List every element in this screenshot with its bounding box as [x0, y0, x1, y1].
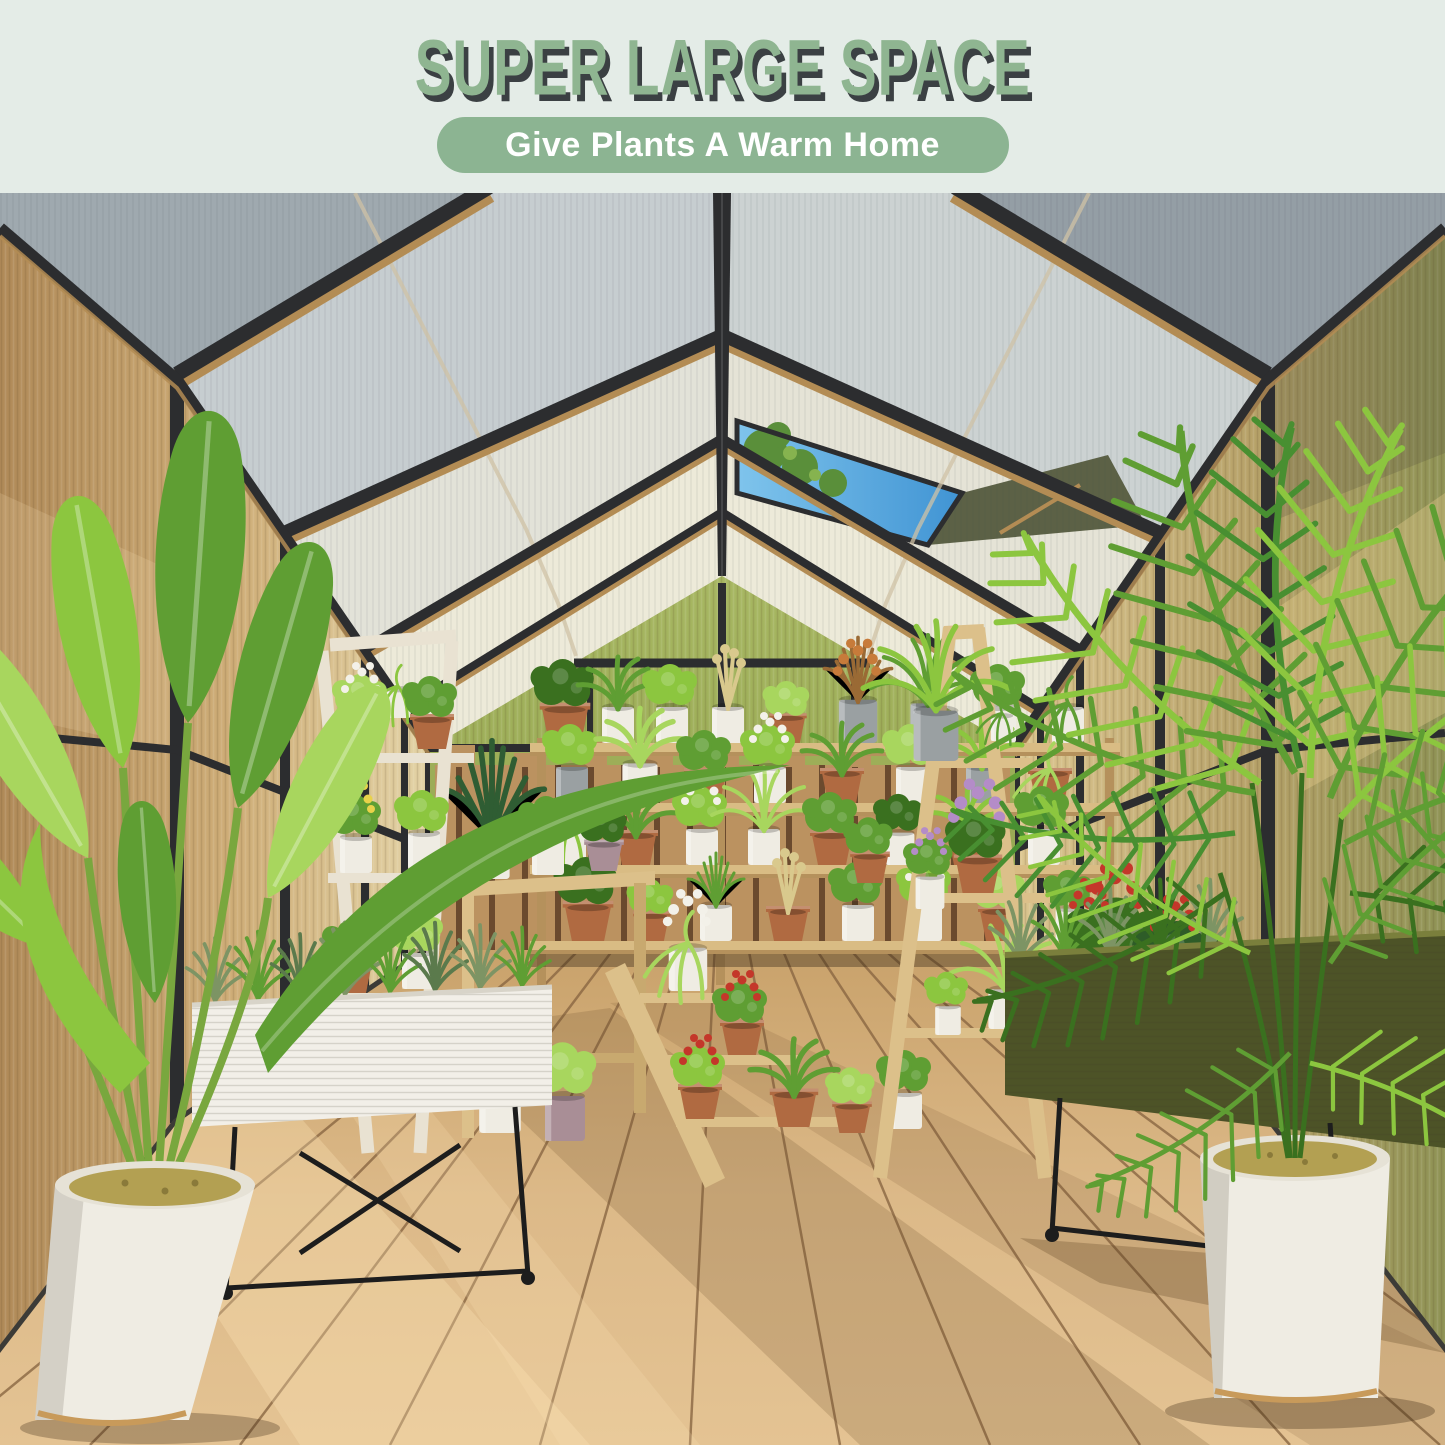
palm-pot	[1200, 1135, 1390, 1400]
greenhouse-photo	[0, 193, 1445, 1445]
tagline-pill: Give Plants A Warm Home	[437, 117, 1009, 173]
tagline-text: Give Plants A Warm Home	[505, 126, 940, 165]
headline-text: SUPER LARGE SPACE	[415, 21, 1031, 112]
header-band: SUPER LARGE SPACE Give Plants A Warm Hom…	[0, 0, 1445, 193]
headline: SUPER LARGE SPACE	[0, 24, 1445, 110]
product-marketing-image: SUPER LARGE SPACE Give Plants A Warm Hom…	[0, 0, 1445, 1445]
